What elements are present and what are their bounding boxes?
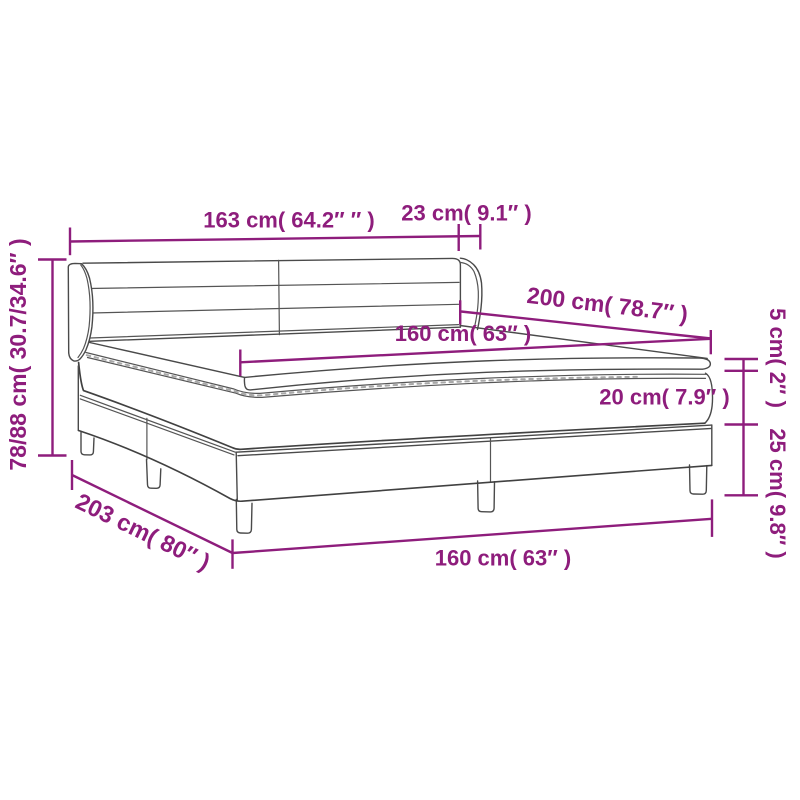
svg-text:160 cm( 63″ ): 160 cm( 63″ )	[395, 321, 532, 346]
svg-text:23 cm( 9.1″ ): 23 cm( 9.1″ )	[401, 201, 531, 226]
svg-text:78/88 cm( 30.7/34.6″ ): 78/88 cm( 30.7/34.6″ )	[5, 238, 31, 470]
svg-text:5 cm( 2″ ): 5 cm( 2″ )	[765, 308, 790, 408]
svg-text:163 cm( 64.2″ ″ ): 163 cm( 64.2″ ″ )	[203, 207, 375, 232]
svg-text:25 cm( 9.8″ ): 25 cm( 9.8″ )	[765, 428, 790, 558]
svg-text:20 cm( 7.9″ ): 20 cm( 7.9″ )	[599, 384, 729, 409]
svg-text:160 cm( 63″ ): 160 cm( 63″ )	[435, 546, 572, 571]
